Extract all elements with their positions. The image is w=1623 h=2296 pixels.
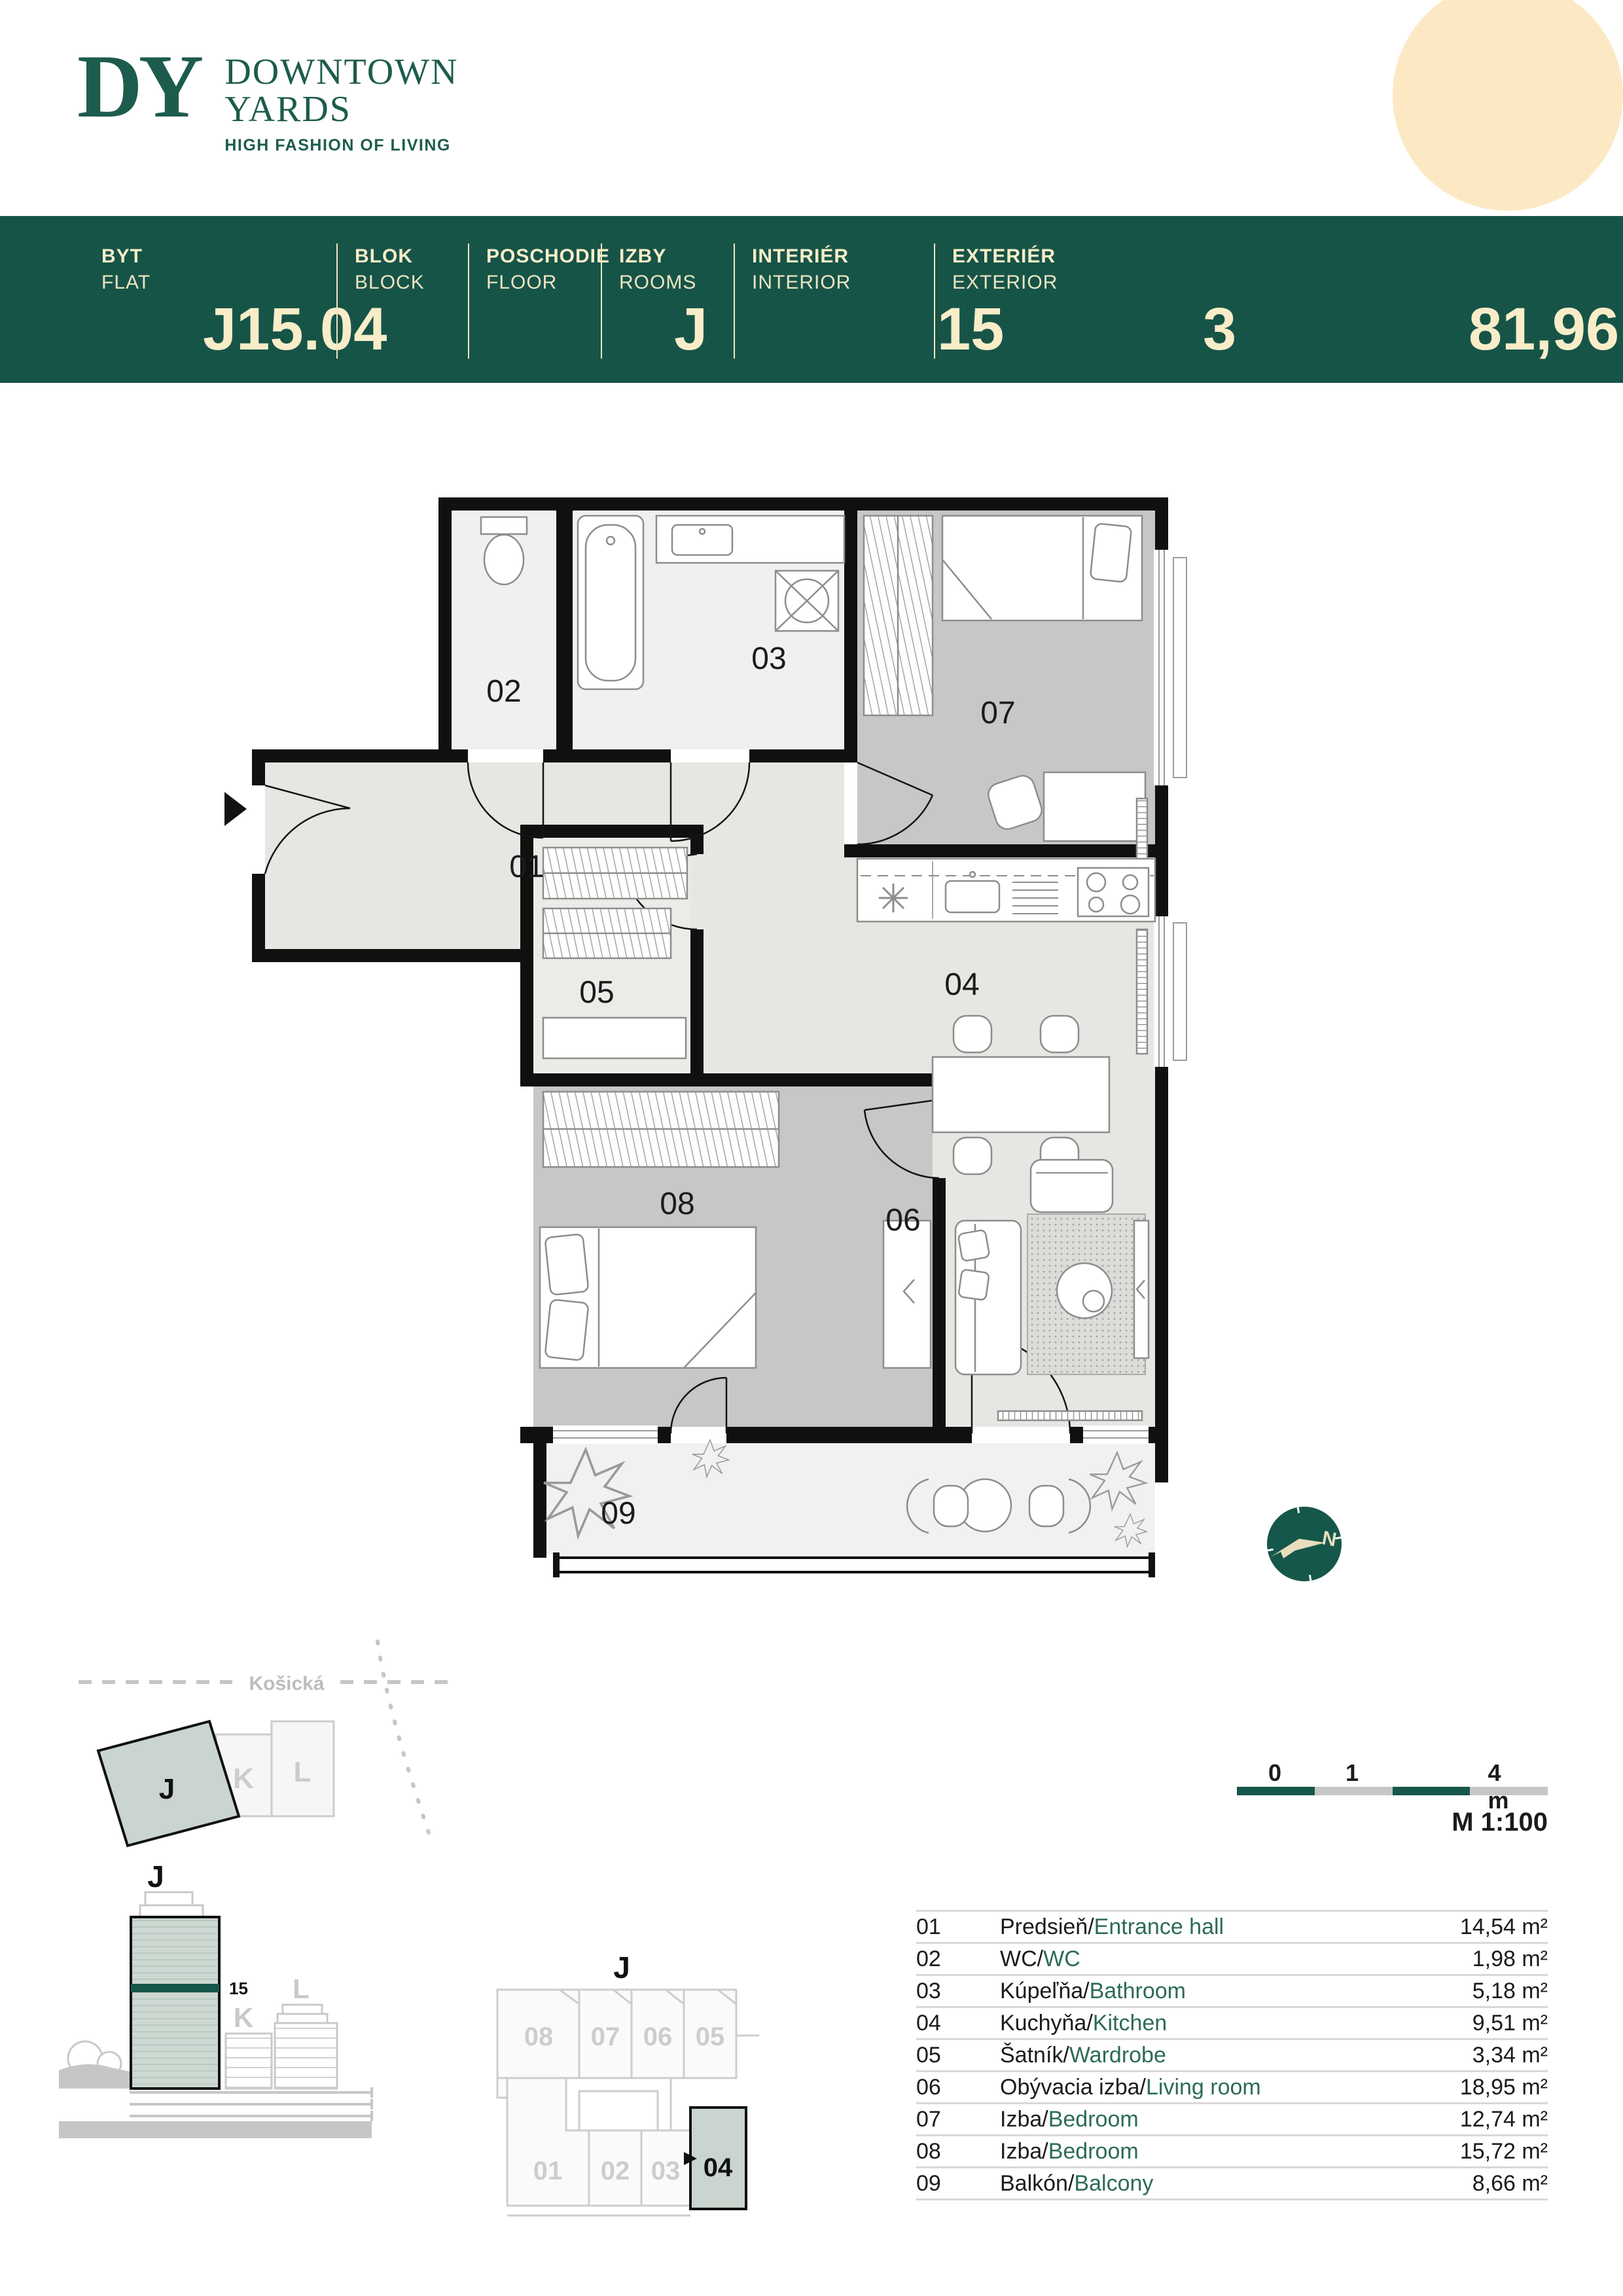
logo-line1: DOWNTOWN [224,54,458,91]
floor-key-plan: J 08 07 06 05 01 02 03 04 [494,1950,795,2258]
spec-interior: INTERIÉR INTERIOR 81,96m² [734,243,929,359]
keyplan-unit-07: 07 [591,2022,620,2051]
room-label-04: 04 [944,967,979,1002]
scale-4m: 4 m [1488,1759,1528,1814]
floorplan-sheet: DY DOWNTOWN YARDS HIGH FASHION OF LIVING… [0,0,1623,2296]
scale-bar: 0 1 4 m [1237,1759,1548,1795]
keyplan-unit-03: 03 [651,2157,681,2185]
entry-arrow-icon [224,792,247,826]
room-label-05: 05 [579,975,614,1010]
spec-exterior: EXTERIÉR EXTERIOR 8,66m² [934,243,1135,359]
balcony-railing [553,1552,1155,1577]
building-elevation: J 15 K L [46,1862,386,2255]
keyplan-unit-02: 02 [601,2157,630,2185]
elevation-k-label: K [234,2002,253,2033]
compass-icon: N [1260,1502,1351,1590]
scale-0: 0 [1268,1759,1281,1787]
keyplan-unit-08: 08 [524,2022,554,2051]
decor-circle [1393,0,1623,211]
legend-row: 01 Predsieň/Entrance hall 14,54 m² [916,1910,1548,1942]
legend-row: 03 Kúpeľňa/Bathroom 5,18 m² [916,1974,1548,2006]
site-block-k: K [233,1763,254,1795]
legend-row: 07 Izba/Bedroom 12,74 m² [916,2102,1548,2134]
scale-1: 1 [1346,1759,1359,1787]
keyplan-unit-01: 01 [533,2157,563,2185]
logo-monogram: DY [77,47,200,155]
room-floors [265,511,1155,1554]
legend-row: 06 Obývacia izba/Living room 18,95 m² [916,2070,1548,2102]
spec-header: BYT FLAT J15.04 BLOK BLOCK J POSCHODIE F… [0,216,1623,383]
keyplan-title: J [613,1950,630,1984]
room-label-02: 02 [486,674,521,709]
legend-row: 08 Izba/Bedroom 15,72 m² [916,2134,1548,2166]
elevation-l-label: L [293,1973,310,2004]
room-legend: 01 Predsieň/Entrance hall 14,54 m² 02 WC… [916,1910,1548,2200]
spec-rooms: IZBY ROOMS 3 [601,243,730,359]
brand-logo: DY DOWNTOWN YARDS HIGH FASHION OF LIVING [77,47,458,155]
room-label-06: 06 [885,1203,920,1238]
elevation-floor-label: 15 [229,1979,248,1998]
room-label-08: 08 [660,1187,694,1221]
legend-row: 05 Šatník/Wardrobe 3,34 m² [916,2038,1548,2070]
legend-row: 04 Kuchyňa/Kitchen 9,51 m² [916,2006,1548,2038]
room-label-09: 09 [601,1496,635,1531]
keyplan-unit-06: 06 [643,2022,673,2051]
site-block-l: L [294,1756,312,1788]
spec-block: BLOK BLOCK J [336,243,459,359]
site-block-j: J [159,1773,175,1805]
floor-plan: 01 02 03 04 05 06 07 08 09 [223,494,1191,1600]
keyplan-unit-04-highlight: 04 [704,2153,733,2182]
legend-row: 02 WC/WC 1,98 m² [916,1942,1548,1974]
spec-floor: POSCHODIE FLOOR 15 [468,243,597,359]
room-label-01: 01 [509,850,544,884]
map-scale-label: M 1:100 [1237,1808,1548,1837]
logo-tagline: HIGH FASHION OF LIVING [224,136,458,155]
street-label: Košická [249,1673,324,1695]
elevation-j-label: J [147,1862,164,1893]
keyplan-unit-05: 05 [696,2022,725,2051]
logo-line2: YARDS [224,91,458,128]
room-label-07: 07 [980,696,1015,730]
spec-flat: BYT FLAT J15.04 [101,243,324,359]
legend-row: 09 Balkón/Balcony 8,66 m² [916,2166,1548,2200]
room-label-03: 03 [751,641,786,676]
